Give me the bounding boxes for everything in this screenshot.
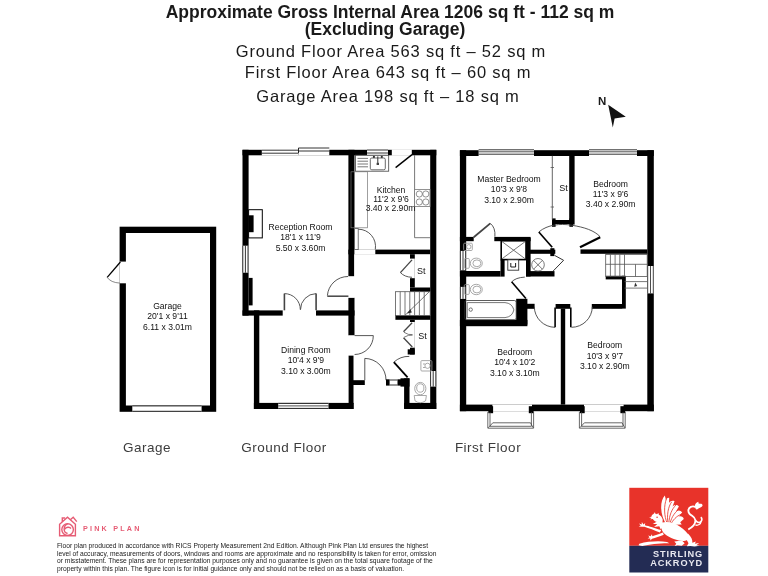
svg-text:11'3 x 9'6: 11'3 x 9'6 [593,189,629,199]
svg-text:N: N [598,95,606,107]
svg-text:Garage: Garage [153,301,182,311]
svg-text:Ground Floor Area 563 sq ft –: Ground Floor Area 563 sq ft – 52 sq m [236,42,546,60]
svg-text:5.50 x 3.60m: 5.50 x 3.60m [276,243,326,253]
svg-text:Master Bedroom: Master Bedroom [477,174,541,184]
svg-text:Dining Room: Dining Room [281,345,331,355]
svg-text:Garage: Garage [123,440,171,455]
svg-text:property within this plan. The: property within this plan. The figure ic… [57,565,404,573]
svg-text:20'1 x 9'11: 20'1 x 9'11 [147,311,188,321]
svg-text:3.10 x 2.90m: 3.10 x 2.90m [484,195,534,205]
svg-text:3.10 x 2.90m: 3.10 x 2.90m [580,361,630,371]
svg-text:St: St [559,183,568,193]
svg-text:ACKROYD: ACKROYD [650,558,703,568]
svg-text:3.10 x 3.00m: 3.10 x 3.00m [281,366,331,376]
svg-text:First Floor Area 643 sq ft – 6: First Floor Area 643 sq ft – 60 sq m [245,63,532,81]
svg-text:Bedroom: Bedroom [593,179,628,189]
svg-text:10'4 x 9'9: 10'4 x 9'9 [288,355,324,365]
svg-text:(Excluding Garage): (Excluding Garage) [305,19,465,39]
svg-text:10'3 x 9'7: 10'3 x 9'7 [587,351,623,361]
svg-text:6.11 x 3.01m: 6.11 x 3.01m [143,322,192,332]
svg-text:3.40 x 2.90m: 3.40 x 2.90m [586,199,636,209]
svg-text:Ground Floor: Ground Floor [241,440,327,455]
svg-text:Bedroom: Bedroom [497,347,532,357]
svg-text:3.10 x 3.10m: 3.10 x 3.10m [490,368,540,378]
svg-text:St: St [417,266,426,276]
svg-text:Bedroom: Bedroom [587,340,622,350]
svg-text:St: St [418,331,427,341]
svg-text:PINK PLAN: PINK PLAN [83,524,142,533]
svg-text:3.40 x 2.90m: 3.40 x 2.90m [366,203,416,213]
svg-text:10'3 x 9'8: 10'3 x 9'8 [491,184,527,194]
svg-text:18'1 x 11'9: 18'1 x 11'9 [280,232,321,242]
svg-text:10'4 x 10'2: 10'4 x 10'2 [494,357,535,367]
svg-text:Reception Room: Reception Room [268,222,332,232]
svg-text:Garage Area 198 sq ft – 18 sq: Garage Area 198 sq ft – 18 sq m [256,87,519,105]
svg-text:First Floor: First Floor [455,440,521,455]
